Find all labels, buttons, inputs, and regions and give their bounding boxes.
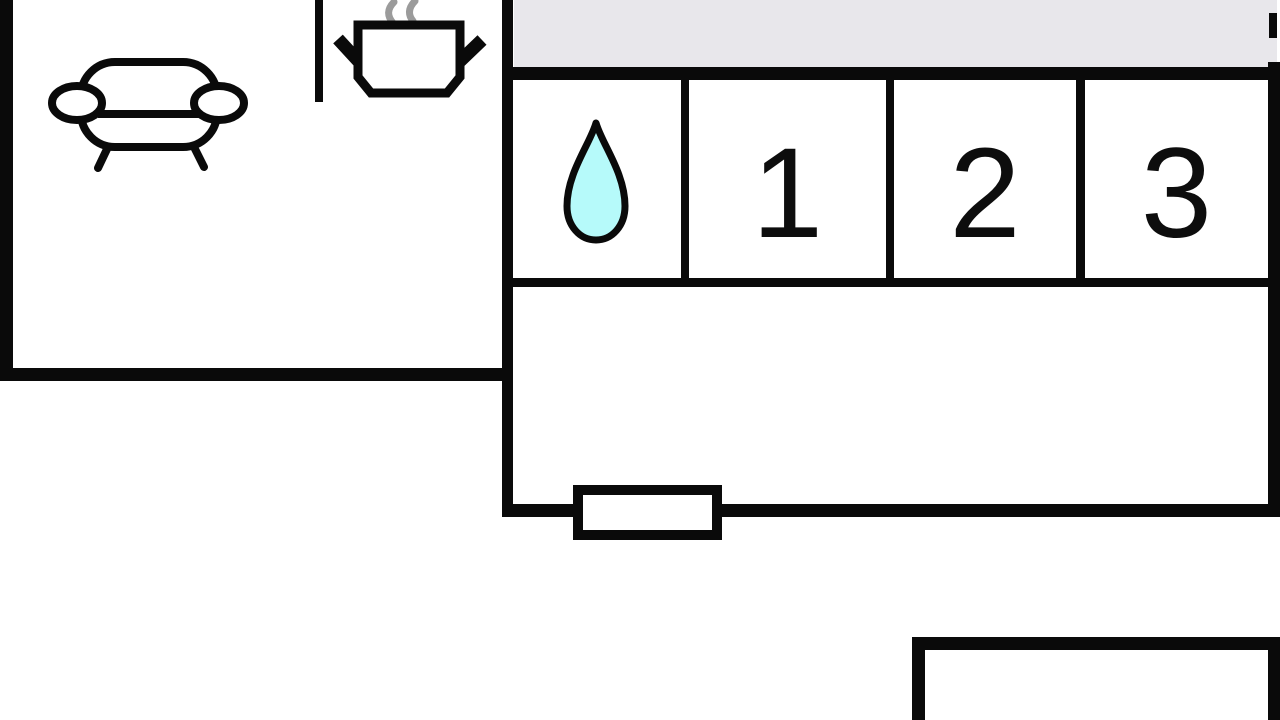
wall-lower-room-right	[1268, 637, 1280, 720]
wall-lower-room-top	[912, 637, 1280, 650]
wall-cells-bottom	[502, 278, 1280, 287]
wall-terrace-bottom	[502, 67, 1280, 80]
wall-divider-bed2-bed3	[1076, 80, 1085, 278]
wall-divider-bath-bed1	[681, 80, 689, 278]
floor-plan: 1 2 3	[0, 0, 1280, 720]
steam-line	[389, 2, 394, 23]
bedroom-1-number: 1	[689, 80, 886, 278]
wall-right	[1268, 62, 1280, 517]
wall-lower-room-left	[912, 637, 925, 720]
terrace-area	[514, 0, 1277, 67]
bedroom-3-number: 3	[1085, 80, 1268, 278]
wall-divider-bed1-bed2	[886, 80, 894, 278]
water-drop-icon	[560, 118, 632, 246]
window-marker	[573, 485, 722, 540]
wall-living-bottom	[0, 368, 512, 381]
wall-right-top-dash	[1269, 13, 1277, 38]
steam-line	[409, 1, 415, 21]
wall-kitchen-divider	[315, 0, 323, 102]
room-below-area	[925, 650, 1268, 720]
hallway-area	[513, 287, 1268, 504]
cooking-pot-icon	[330, 0, 490, 100]
sofa-icon	[48, 58, 248, 172]
wall-living-left	[0, 0, 13, 381]
bedroom-2-number: 2	[894, 80, 1076, 278]
